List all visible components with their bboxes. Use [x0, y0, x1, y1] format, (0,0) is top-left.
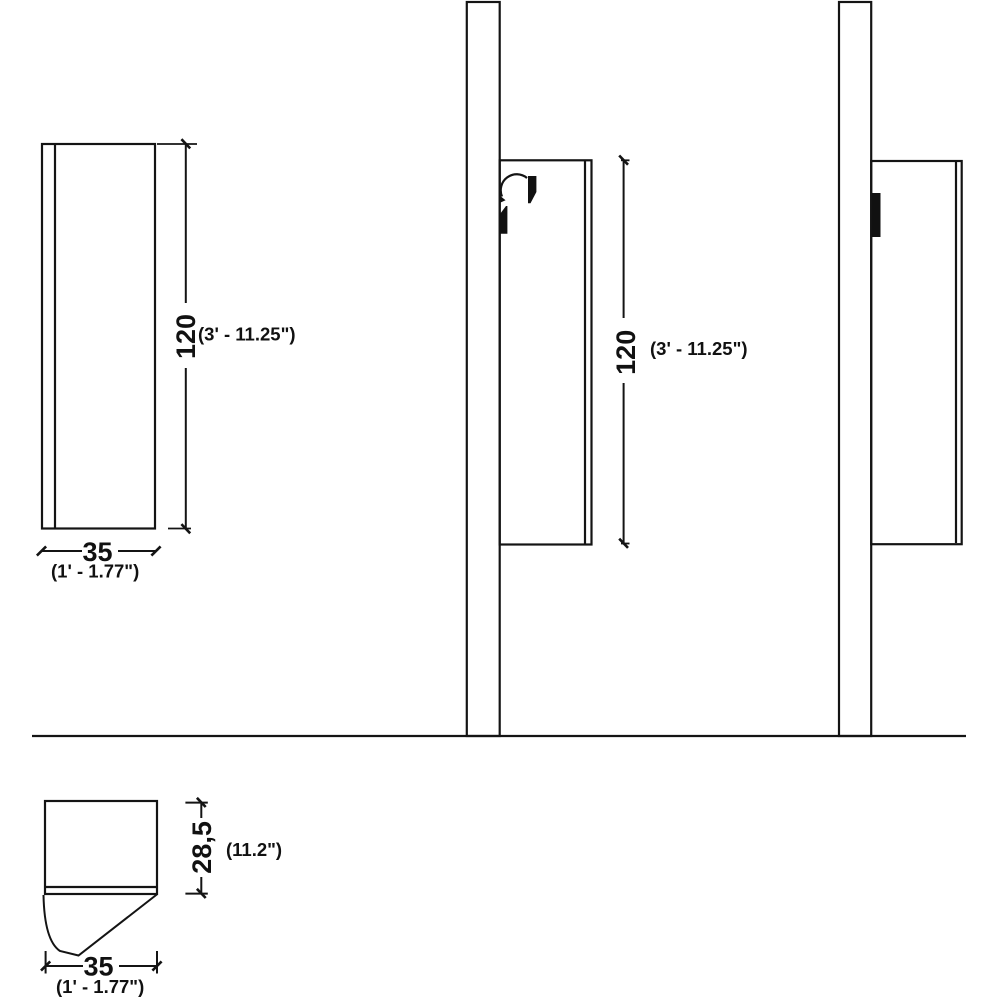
svg-text:(3' - 11.25"): (3' - 11.25")	[198, 324, 296, 345]
svg-text:120: 120	[171, 314, 201, 359]
svg-text:(11.2"): (11.2")	[226, 839, 282, 860]
svg-text:(1' - 1.77"): (1' - 1.77")	[51, 561, 139, 582]
svg-text:28,5: 28,5	[187, 821, 217, 874]
svg-text:120: 120	[611, 330, 641, 375]
svg-text:(1' - 1.77"): (1' - 1.77")	[56, 976, 144, 997]
svg-text:(3' - 11.25"): (3' - 11.25")	[650, 338, 748, 359]
